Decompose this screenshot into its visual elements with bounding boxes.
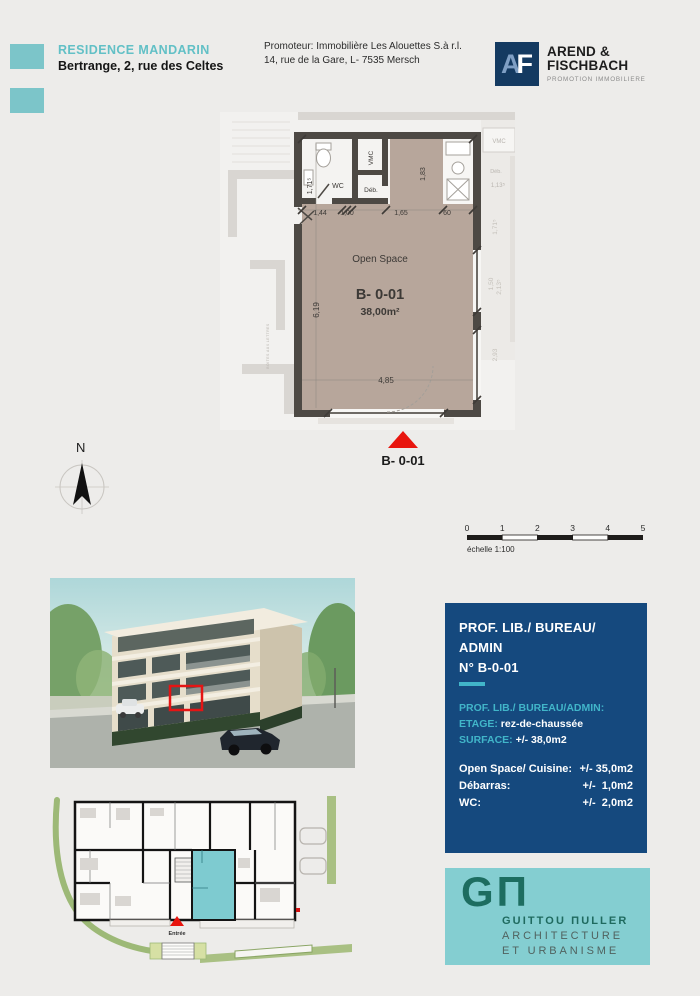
info-title-line2: N° B-0-01	[459, 658, 633, 678]
compass-north-label: N	[76, 440, 85, 455]
room-value-wc: +/- 2,0m2	[583, 795, 633, 812]
scale-tick-5: 5	[641, 523, 646, 533]
info-room-row: Open Space/ Cuisine: +/- 35,0m2	[459, 761, 633, 778]
neighbor-side-dim-3: 2,13⁵	[496, 279, 503, 295]
vmc-label: VMC	[368, 150, 375, 165]
dim-1-83: 1,83	[420, 167, 427, 181]
project-address: Bertrange, 2, rue des Celtes	[58, 58, 223, 74]
af-letter-f: F	[517, 42, 534, 86]
scale-tick-2: 2	[535, 523, 540, 533]
mailboxes-label: BOITES AUX LETTRES	[266, 323, 270, 369]
promoter-line2: 14, rue de la Gare, L- 7535 Mersch	[264, 54, 462, 68]
compass: N	[52, 440, 112, 520]
architect-line3: ET URBANISME	[502, 945, 628, 957]
dim-60: 60	[443, 210, 451, 217]
dim-1-71: 1,71⁵	[307, 178, 314, 195]
photo-building	[104, 608, 308, 746]
scale-tick-3: 3	[570, 523, 575, 533]
architect-name: GUITTOU ΠULLER	[502, 915, 628, 927]
promoter-line1: Promoteur: Immobilière Les Alouettes S.à…	[264, 40, 462, 54]
site-plan-building	[75, 802, 300, 928]
scale-tick-4: 4	[605, 523, 610, 533]
page: RESIDENCE MANDARIN Bertrange, 2, rue des…	[0, 0, 700, 996]
unit-marker-label: B- 0-01	[356, 453, 450, 468]
dim-1-00: 1,00	[340, 210, 354, 217]
site-plan-highlighted-unit	[192, 850, 235, 920]
neighbor-side-dim-1: 1,71⁵	[492, 219, 499, 235]
developer-name-line2: FISCHBACH	[547, 59, 646, 73]
developer-tagline: PROMOTION IMMOBILIERE	[547, 76, 646, 83]
unit-floor-plan: WC VMC Déb. 1,71⁵ 1,44 1,00 1,65 60 1,83…	[220, 112, 515, 430]
developer-logo: A F AREND & FISCHBACH PROMOTION IMMOBILI…	[495, 42, 646, 86]
header-teal-square-2	[10, 88, 44, 113]
room-label-openspace: Open Space/ Cuisine:	[459, 761, 579, 778]
project-title-block: RESIDENCE MANDARIN Bertrange, 2, rue des…	[58, 42, 223, 74]
dim-1-44: 1,44	[313, 210, 327, 217]
wc-label: WC	[332, 183, 344, 190]
scale-caption: échelle 1:100	[467, 545, 515, 554]
unit-area-label: 38,00m²	[360, 306, 400, 318]
building-photo	[50, 578, 355, 768]
room-label-debarras: Débarras:	[459, 778, 583, 795]
af-monogram-icon: A F	[495, 42, 539, 86]
unit-info-box: PROF. LIB./ BUREAU/ ADMIN N° B-0-01 PROF…	[445, 603, 647, 853]
info-room-row: WC: +/- 2,0m2	[459, 795, 633, 812]
project-title: RESIDENCE MANDARIN	[58, 42, 223, 58]
neighbor-side-dim-2: 1,50	[488, 277, 495, 290]
scale-tick-0: 0	[465, 523, 470, 533]
info-etage-label: ETAGE:	[459, 718, 498, 730]
neighbor-deb-label: Déb.	[490, 169, 502, 175]
gm-letter-g: G	[461, 868, 497, 915]
unit-marker-triangle	[388, 431, 418, 448]
info-etage-value: rez-de-chaussée	[498, 718, 583, 730]
info-category: PROF. LIB./ BUREAU/ADMIN:	[459, 700, 633, 716]
deb-label: Déb.	[364, 187, 378, 194]
promoter-block: Promoteur: Immobilière Les Alouettes S.à…	[264, 40, 462, 68]
architect-logo-box: GΠ GUITTOU ΠULLER ARCHITECTURE ET URBANI…	[445, 868, 650, 965]
neighbor-dim-label: 1,13⁵	[491, 182, 506, 189]
dim-1-65: 1,65	[394, 210, 408, 217]
info-title-line1: PROF. LIB./ BUREAU/ ADMIN	[459, 618, 633, 658]
dim-6-19: 6,19	[312, 302, 321, 318]
gm-monogram-icon: GΠ	[461, 868, 530, 916]
developer-name-line1: AREND &	[547, 45, 646, 59]
room-value-openspace: +/- 35,0m2	[579, 761, 633, 778]
info-surface-label: SURFACE:	[459, 734, 513, 746]
dim-4-85: 4,85	[378, 376, 394, 385]
neighbor-vmc-label: VMC	[492, 139, 506, 145]
info-surface-value: +/- 38,0m2	[513, 734, 567, 746]
info-accent-bar	[459, 682, 485, 686]
room-label-wc: WC:	[459, 795, 583, 812]
site-plan-entrance-steps	[150, 943, 206, 959]
header-teal-square-1	[10, 44, 44, 69]
unit-id-label: B- 0-01	[356, 287, 404, 303]
scale-bar: 0 1 2 3 4 5 échelle 1:100	[463, 522, 648, 556]
site-plan: Entrée	[50, 788, 360, 975]
site-plan-parking	[300, 828, 326, 874]
scale-ticks: 0 1 2 3 4 5	[465, 523, 646, 533]
entrance-label: Entrée	[168, 931, 185, 937]
room-value-debarras: +/- 1,0m2	[583, 778, 633, 795]
open-space-label: Open Space	[352, 254, 408, 265]
scale-segments	[467, 535, 643, 540]
neighbor-side-dim-4: 2,93	[492, 348, 499, 361]
gm-letter-pi: Π	[497, 868, 530, 915]
architect-line2: ARCHITECTURE	[502, 930, 628, 942]
info-room-row: Débarras: +/- 1,0m2	[459, 778, 633, 795]
scale-tick-1: 1	[500, 523, 505, 533]
